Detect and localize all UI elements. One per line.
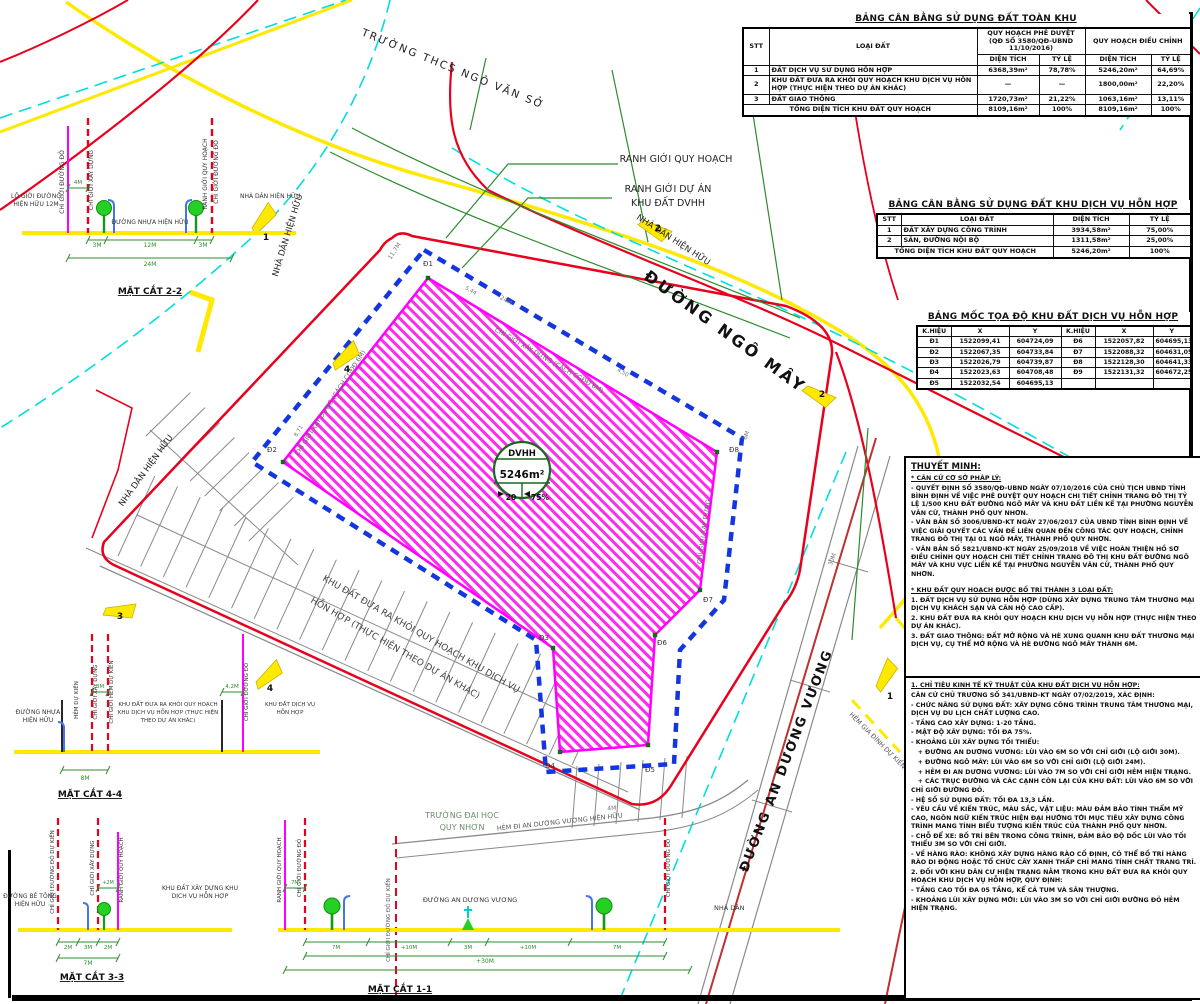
- table-cell: [1061, 378, 1095, 389]
- table-header-row: STTLOẠI ĐẤTQUY HOẠCH PHÊ DUYỆT (QĐ SỐ 35…: [743, 28, 1191, 54]
- table-cell: ĐẤT DỊCH VỤ SỬ DỤNG HỖN HỢP: [769, 65, 977, 76]
- table-cell: TỶ LỆ: [1151, 54, 1191, 65]
- table-header-row: STTLOẠI ĐẤTDIỆN TÍCHTỶ LỆ: [877, 214, 1191, 225]
- table-cell: 25,00%: [1129, 236, 1191, 247]
- section-marker-label: 1: [263, 233, 269, 243]
- table-land-balance-mixed-title: BẢNG CÂN BẰNG SỬ DỤNG ĐẤT KHU DỊCH VỤ HỖ…: [876, 200, 1190, 210]
- table-cell: 3934,58m²: [1053, 225, 1129, 236]
- parcel-line: [146, 393, 190, 436]
- table-cell: 64,69%: [1151, 65, 1191, 76]
- table-land-balance-mixed-panel: BẢNG CÂN BẰNG SỬ DỤNG ĐẤT KHU DỊCH VỤ HỖ…: [876, 200, 1190, 259]
- note-line: - KHOẢNG LÙI XÂY DỰNG MỚI: LÙI VÀO 3M SO…: [911, 897, 1197, 914]
- table-cell: 1522099,41: [951, 337, 1009, 347]
- table-land-balance-total-title: BẢNG CÂN BẰNG SỬ DỤNG ĐẤT TOÀN KHU: [742, 14, 1190, 24]
- sec1-dim: 7M: [291, 880, 299, 886]
- sec1-dim: +30M: [476, 958, 494, 965]
- table-row: 1ĐẤT DỊCH VỤ SỬ DỤNG HỖN HỢP6368,39m²78,…: [743, 65, 1191, 76]
- table-cell: 604695,13: [1009, 378, 1061, 389]
- table-cell: Đ3: [917, 357, 951, 367]
- table-cell: TỶ LỆ: [1039, 54, 1085, 65]
- table-cell: QUY HOẠCH ĐIỀU CHỈNH: [1085, 28, 1191, 54]
- note-line: * KHU ĐẤT QUY HOẠCH ĐƯỢC BỐ TRÍ THÀNH 3 …: [911, 587, 1197, 595]
- label-hem-adv: HẺM ĐI AN DƯƠNG VƯƠNG HIỆN HỮU: [496, 810, 623, 832]
- table-cell: [1153, 378, 1191, 389]
- sec2-label: ĐƯỜNG NHỰA HIỆN HỮU: [112, 218, 189, 226]
- sec4-label: THEO DỰ ÁN KHÁC): [140, 717, 196, 724]
- sec3-title: MẶT CẮT 3-3: [60, 970, 124, 983]
- tree-icon: [98, 903, 111, 931]
- median-icon: [462, 918, 474, 930]
- corner-point-marker: [551, 646, 555, 650]
- red-zigzag-left: [92, 390, 132, 538]
- corner-point-marker: [558, 750, 562, 754]
- table-cell: 604708,48: [1009, 368, 1061, 378]
- corner-point-marker: [646, 743, 650, 747]
- centerline-topleft: [0, 0, 346, 118]
- table-cell: 100%: [1039, 105, 1085, 116]
- table-cell: 604724,09: [1009, 337, 1061, 347]
- sec2-label: NHÀ DÂN HIỆN HỮU: [240, 192, 301, 200]
- section-marker-label: 2: [819, 390, 825, 400]
- circle-density: 75%: [531, 493, 549, 502]
- note-line: - TẦNG CAO XÂY DỰNG: 1-20 TẦNG.: [911, 720, 1197, 728]
- table-cell: 1063,16m²: [1085, 94, 1151, 105]
- tree-icon: [324, 898, 340, 930]
- sec3-dim: 2M: [64, 945, 72, 951]
- dim-label: 4,50: [616, 367, 630, 379]
- table-cell: [1095, 378, 1153, 389]
- table-cell: 1800,00m²: [1085, 76, 1151, 94]
- note-line: - KHOẢNG LÙI XÂY DỰNG TỐI THIỂU:: [911, 739, 1197, 747]
- section-marker-label: 4: [267, 684, 273, 694]
- table-cell: Đ6: [1061, 337, 1095, 347]
- label-university-1: TRƯỜNG ĐẠI HỌC: [424, 809, 499, 821]
- sec3-label: DỊCH VỤ HỖN HỢP: [172, 892, 229, 900]
- table-cell: 1: [877, 225, 901, 236]
- label-road-ngo-may: ĐƯỜNG NGÔ MÂY: [640, 266, 810, 397]
- note-line: [911, 581, 1197, 586]
- sec2-label: CHỈ GIỚI ĐƯỜNG ĐỎ: [212, 140, 220, 204]
- table-cell: 604733,84: [1009, 347, 1061, 357]
- table-cell: ĐẤT GIAO THÔNG: [769, 94, 977, 105]
- sec3-label: RANH GIỚI QUY HOẠCH: [118, 837, 125, 902]
- note-line: - MẬT ĐỘ XÂY DỰNG: TỐI ĐA 75%.: [911, 729, 1197, 737]
- dim-label: 24M: [498, 294, 513, 306]
- note-thuyet-minh-title: THUYẾT MINH:: [911, 462, 1197, 472]
- dim-label: 5,44: [464, 285, 478, 297]
- parcel-line: [660, 758, 665, 820]
- table-cell: ĐẤT XÂY DỰNG CÔNG TRÌNH: [901, 225, 1053, 236]
- road-yellow-spur: [190, 292, 212, 352]
- table-cell: LOẠI ĐẤT: [769, 28, 977, 65]
- table-cell: X: [1095, 326, 1153, 337]
- table-row: Đ21522067,35604733,84Đ71522088,32604631,…: [917, 347, 1191, 357]
- label-project-boundary-1: RANH GIỚI DỰ ÁN: [625, 183, 712, 195]
- table-cell: 1522057,82: [1095, 337, 1153, 347]
- sec2-label: HIỆN HỮU 12M: [13, 200, 58, 208]
- note-line: - HỆ SỐ SỬ DỤNG ĐẤT: TỐI ĐA 13,3 LẦN.: [911, 797, 1197, 805]
- parcel-line: [220, 468, 264, 511]
- table-cell: 22,20%: [1151, 76, 1191, 94]
- table-cell: 78,78%: [1039, 65, 1085, 76]
- tree-icon: [596, 898, 612, 930]
- note-line: - VĂN BẢN SỐ 3006/UBND-KT NGÀY 27/06/201…: [911, 519, 1197, 544]
- explanatory-notes-panel: THUYẾT MINH:* CĂN CỨ CƠ SỞ PHÁP LÝ:- QUY…: [904, 456, 1200, 680]
- table-row: Đ51522032,54604695,13: [917, 378, 1191, 389]
- table-cell: K.HIỆU: [1061, 326, 1095, 337]
- note-line: - VỀ HÀNG RÀO: KHÔNG XÂY DỰNG HÀNG RÀO C…: [911, 851, 1197, 868]
- sec2-title: MẶT CẮT 2-2: [118, 284, 182, 297]
- section-marker-label: 1: [887, 692, 893, 702]
- sec3-dim: 2M: [104, 945, 112, 951]
- table-cell: 604695,13: [1153, 337, 1191, 347]
- table-cell: DIỆN TÍCH: [977, 54, 1039, 65]
- table-cell: 1522131,32: [1095, 368, 1153, 378]
- note-line: + CÁC TRỤC ĐƯỜNG VÀ CÁC CẠNH CÒN LẠI CỦA…: [911, 778, 1197, 795]
- label-planning-boundary: RANH GIỚI QUY HOẠCH: [620, 153, 733, 165]
- table-cell: SÂN, ĐƯỜNG NỘI BỘ: [901, 236, 1053, 247]
- red-diag-behind-tables: [852, 92, 898, 300]
- sec1-label: RANH GIỚI QUY HOẠCH: [276, 837, 283, 902]
- circle-land-area: 5246m²: [500, 469, 545, 481]
- point-label: Đ3: [539, 634, 549, 642]
- table-cell: 1522128,30: [1095, 357, 1153, 367]
- sec2-label: RANH GIỚI QUY HOẠCH: [202, 138, 209, 209]
- sec4-label: ĐƯỜNG NHỰA: [16, 709, 61, 716]
- note-line: 3. ĐẤT GIAO THÔNG: ĐẤT MỞ RỘNG VÀ HÈ XUN…: [911, 633, 1197, 650]
- sec3-label: CHỈ GIỚI XÂY DỰNG: [88, 840, 96, 895]
- table-row: Đ31522026,79604739,87Đ81522128,30604641,…: [917, 357, 1191, 367]
- table-land-balance-total: STTLOẠI ĐẤTQUY HOẠCH PHÊ DUYỆT (QĐ SỐ 35…: [742, 27, 1192, 117]
- table-coordinates: K.HIỆUXYK.HIỆUXYĐ11522099,41604724,09Đ61…: [916, 325, 1192, 390]
- note-line: - CHỖ ĐỂ XE: BỐ TRÍ BÊN TRONG CÔNG TRÌNH…: [911, 833, 1197, 850]
- table-cell: KHU ĐẤT ĐƯA RA KHỎI QUY HOẠCH KHU DỊCH V…: [769, 76, 977, 94]
- table-cell: 3: [743, 94, 769, 105]
- table-cell: —: [1039, 76, 1085, 94]
- sec1-label: CHỈ GIỚI ĐƯỜNG ĐỎ: [295, 838, 303, 897]
- street-lamp-icon: [344, 896, 350, 930]
- label-project-boundary-2: KHU ĐẤT DVHH: [631, 197, 705, 209]
- parcel-line: [163, 497, 200, 577]
- table-cell: DIỆN TÍCH: [1085, 54, 1151, 65]
- table-cell: Y: [1009, 326, 1061, 337]
- table-cell: TỔNG DIỆN TÍCH KHU ĐẤT QUY HOẠCH: [877, 246, 1053, 257]
- note-line: - QUYẾT ĐỊNH SỐ 3580/QĐ-UBND NGÀY 07/10/…: [911, 485, 1197, 518]
- table-cell: 100%: [1129, 246, 1191, 257]
- parcel-line: [504, 654, 541, 734]
- parcel-line: [234, 483, 278, 526]
- sec4-label: HẺM DỰ KIẾN: [72, 681, 80, 719]
- section-marker-flag: [871, 658, 900, 694]
- sec4-label: CHỈ GIỚI XÂY DỰNG: [91, 664, 99, 719]
- note-line: - TẦNG CAO TỐI ĐA 05 TẦNG, KỂ CẢ TUM VÀ …: [911, 887, 1197, 895]
- sec4-title: MẶT CẮT 4-4: [58, 787, 122, 800]
- sec1-label: NHÀ DÂN: [714, 903, 745, 912]
- sec1-dim: +10M: [401, 945, 418, 951]
- street-lamp-icon: [586, 896, 592, 930]
- point-label: Đ8: [729, 446, 739, 454]
- sec2-dim: 12M: [144, 242, 157, 249]
- table-land-balance-total-panel: BẢNG CÂN BẰNG SỬ DỤNG ĐẤT TOÀN KHUSTTLOẠ…: [742, 14, 1190, 117]
- sec3-dim: 7M: [84, 960, 93, 967]
- sec3-label: CHỈ GIỚI ĐƯỜNG ĐỎ DỰ KIẾN: [48, 830, 56, 914]
- table-cell: 75,00%: [1129, 225, 1191, 236]
- table-cell: X: [951, 326, 1009, 337]
- table-cell: 1522026,79: [951, 357, 1009, 367]
- sec2-label: CHỈ GIỚI XÂY DỰNG: [87, 150, 95, 211]
- table-cell: QUY HOẠCH PHÊ DUYỆT (QĐ SỐ 3580/QĐ-UBND …: [977, 28, 1085, 54]
- note-line: 1. CHỈ TIÊU KINH TẾ KỸ THUẬT CỦA KHU ĐẤT…: [911, 682, 1197, 690]
- table-cell: Y: [1153, 326, 1191, 337]
- table-cell: Đ8: [1061, 357, 1095, 367]
- sec1-title: MẶT CẮT 1-1: [368, 982, 432, 995]
- street-lamp-icon: [58, 722, 64, 752]
- drawing-sheet: TRƯỜNG THCS NGÔ VĂN SỞNHÀ DÂN HIỆN HỮUNH…: [0, 0, 1200, 1004]
- table-cell: 8109,16m²: [977, 105, 1039, 116]
- table-cell: 1522067,35: [951, 347, 1009, 357]
- sec4-label: KHU ĐẤT ĐƯA RA KHỎI QUY HOẠCH: [118, 700, 217, 708]
- table-cell: Đ4: [917, 368, 951, 378]
- dim-label: CHỈ GIỚI ĐƯỜNG ĐỎ DỰ KIẾN: [384, 878, 392, 962]
- sec4-label: CHỈ GIỚI ĐƯỜNG ĐỎ: [242, 662, 250, 721]
- sec2-dim: 4M: [74, 180, 82, 186]
- table-cell: 100%: [1151, 105, 1191, 116]
- dim-label: 4M: [607, 805, 617, 813]
- point-label: Đ2: [267, 446, 277, 454]
- sec4-label: HỖN HỢP: [277, 708, 304, 716]
- note-line: 1. ĐẤT DỊCH VỤ SỬ DỤNG HỖN HỢP (DÙNG XÂY…: [911, 597, 1197, 614]
- table-cell: K.HIỆU: [917, 326, 951, 337]
- table-row: Đ41522023,63604708,48Đ91522131,32604672,…: [917, 368, 1191, 378]
- label-hem-gia-dinh: HẺM GIA ĐÌNH DỰ KIẾN: [847, 709, 908, 770]
- road-edge-yellow-topleft: [0, 0, 352, 132]
- table-cell: 13,11%: [1151, 94, 1191, 105]
- table-cell: 1720,73m²: [977, 94, 1039, 105]
- sec3-label: HIỆN HỮU: [15, 900, 46, 908]
- label-school-thcs: TRƯỜNG THCS NGÔ VĂN SỞ: [359, 25, 548, 112]
- note-line: - YÊU CẦU VỀ KIẾN TRÚC, MÀU SẮC, VẬT LIỆ…: [911, 806, 1197, 831]
- corner-point-marker: [715, 450, 719, 454]
- note-line: + ĐƯỜNG NGÔ MÂY: LÙI VÀO 6M SO VỚI CHỈ G…: [911, 759, 1197, 767]
- sec1-dim: +10M: [520, 945, 537, 951]
- parcel-line: [249, 498, 293, 541]
- table-row: TỔNG DIỆN TÍCH KHU ĐẤT QUY HOẠCH8109,16m…: [743, 105, 1191, 116]
- point-label: Đ5: [645, 766, 655, 774]
- table-row: 2KHU ĐẤT ĐƯA RA KHỎI QUY HOẠCH KHU DỊCH …: [743, 76, 1191, 94]
- point-label: Đ1: [423, 260, 433, 268]
- corner-point-marker: [653, 633, 657, 637]
- table-cell: Đ2: [917, 347, 951, 357]
- sec2-label: LỘ GIỚI ĐƯỜNG: [11, 193, 61, 200]
- section-marker-label: 3: [117, 612, 123, 622]
- label-existing-houses-1: NHÀ DÂN HIỆN HỮU: [269, 192, 306, 278]
- sec3-label: ĐƯỜNG BÊ TÔNG: [3, 892, 57, 900]
- table-coordinates-panel: BẢNG MỐC TỌA ĐỘ KHU ĐẤT DỊCH VỤ HỖN HỢPK…: [916, 312, 1190, 390]
- table-cell: DIỆN TÍCH: [1053, 214, 1129, 225]
- section-marker-label: 4: [344, 365, 350, 375]
- sec1-dim: 3M: [464, 945, 472, 951]
- table-row: 3ĐẤT GIAO THÔNG1720,73m²21,22%1063,16m²1…: [743, 94, 1191, 105]
- parcel-line: [209, 518, 246, 598]
- sec1-dim: 7M: [613, 945, 621, 951]
- sec2-dim: 3M: [93, 242, 102, 249]
- label-university-2: QUY NHƠN: [440, 823, 485, 832]
- parcel-line: [254, 539, 291, 619]
- table-row: TỔNG DIỆN TÍCH KHU ĐẤT QUY HOẠCH5246,20m…: [877, 246, 1191, 257]
- point-label: Đ7: [703, 596, 713, 604]
- table-cell: 5246,20m²: [1085, 65, 1151, 76]
- dim-label: 30M: [827, 552, 838, 566]
- note-line: + HẺM ĐI AN DƯƠNG VƯƠNG: LÙI VÀO 7M SO V…: [911, 769, 1197, 777]
- table-land-balance-mixed: STTLOẠI ĐẤTDIỆN TÍCHTỶ LỆ1ĐẤT XÂY DỰNG C…: [876, 213, 1192, 259]
- note-line: - CHỨC NĂNG SỬ DỤNG ĐẤT: XÂY DỰNG CÔNG T…: [911, 702, 1197, 719]
- table-cell: 2: [743, 76, 769, 94]
- street-lamp-icon: [83, 903, 88, 930]
- table-cell: TỶ LỆ: [1129, 214, 1191, 225]
- point-label: Đ4: [545, 762, 555, 770]
- tree-icon: [97, 201, 112, 234]
- table-cell: Đ5: [917, 378, 951, 389]
- sec1-dim: 7M: [332, 945, 340, 951]
- dimension-lines: [60, 688, 245, 774]
- note-line: - VĂN BẢN SỐ 5821/UBND-KT NGÀY 25/09/201…: [911, 546, 1197, 579]
- corner-point-marker: [698, 588, 702, 592]
- sec4-label: CHỈ GIỚI HẺM DỰ KIẾN: [107, 660, 115, 723]
- sec3-dim: +2M: [102, 880, 114, 886]
- sec1-label: ĐƯỜNG AN DƯƠNG VƯƠNG: [423, 895, 517, 904]
- circle-land-code: DVHH: [508, 449, 536, 459]
- table-cell: 604631,05: [1153, 347, 1191, 357]
- sec2-dim: 3M: [199, 242, 208, 249]
- table-cell: STT: [877, 214, 901, 225]
- note-line: CĂN CỨ CHỦ TRƯƠNG SỐ 341/UBND-KT NGÀY 07…: [911, 692, 1197, 700]
- table-cell: 1522023,63: [951, 368, 1009, 378]
- table-cell: 1311,58m²: [1053, 236, 1129, 247]
- table-cell: 1522032,54: [951, 378, 1009, 389]
- boundary-red-right-gap: [836, 352, 896, 618]
- sec2-label: CHỈ GIỚI ĐƯỜNG ĐỎ: [58, 150, 66, 214]
- table-cell: TỔNG DIỆN TÍCH KHU ĐẤT QUY HOẠCH: [743, 105, 977, 116]
- sec2-dim: 24M: [144, 261, 157, 268]
- table-row: 1ĐẤT XÂY DỰNG CÔNG TRÌNH3934,58m²75,00%: [877, 225, 1191, 236]
- table-cell: LOẠI ĐẤT: [901, 214, 1053, 225]
- sec4-label: HIỆN HỮU: [23, 716, 54, 724]
- table-cell: 5246,20m²: [1053, 246, 1129, 257]
- parcel-line: [186, 507, 223, 587]
- adv-road-edge: [698, 446, 858, 1004]
- note-line: 2. KHU ĐẤT ĐƯA RA KHỎI QUY HOẠCH KHU DỊC…: [911, 615, 1197, 632]
- sec3-dim: 3M: [84, 945, 92, 951]
- table-cell: 604672,25: [1153, 368, 1191, 378]
- table-cell: 1522088,32: [1095, 347, 1153, 357]
- table-coordinates-title: BẢNG MỐC TỌA ĐỘ KHU ĐẤT DỊCH VỤ HỖN HỢP: [916, 312, 1190, 322]
- sec4-dim: 8M: [81, 775, 90, 782]
- parcel-line: [638, 760, 643, 822]
- parcel-line: [205, 453, 249, 496]
- dim-label: 6M: [742, 430, 752, 441]
- circle-floors: 20: [506, 493, 516, 502]
- note-line: * CĂN CỨ CƠ SỞ PHÁP LÝ:: [911, 475, 1197, 483]
- technical-criteria-panel: 1. CHỈ TIÊU KINH TẾ KỸ THUẬT CỦA KHU ĐẤT…: [904, 676, 1200, 1000]
- section-marker-label: 2: [655, 224, 661, 234]
- sec4-dim: 4,2M: [225, 684, 239, 690]
- median-pole-icon: [464, 906, 472, 918]
- sec4-label: KHU DỊCH VỤ HỖN HỢP (THỰC HIỆN: [118, 708, 218, 716]
- table-header-row: K.HIỆUXYK.HIỆUXY: [917, 326, 1191, 337]
- table-cell: Đ7: [1061, 347, 1095, 357]
- table-cell: 8109,16m²: [1085, 105, 1151, 116]
- dim-label: 11,7M: [387, 241, 403, 260]
- note-line: 2. ĐỐI VỚI KHU DÂN CƯ HIỆN TRẠNG NẰM TRO…: [911, 869, 1197, 886]
- table-cell: 2: [877, 236, 901, 247]
- table-cell: 6368,39m²: [977, 65, 1039, 76]
- table-row: 2SÂN, ĐƯỜNG NỘI BỘ1311,58m²25,00%: [877, 236, 1191, 247]
- table-cell: —: [977, 76, 1039, 94]
- table-cell: 604739,87: [1009, 357, 1061, 367]
- sec1-label: CHỈ GIỚI ĐƯỜNG ĐỎ: [664, 838, 672, 897]
- table-cell: 21,22%: [1039, 94, 1085, 105]
- sec4-dim: 3M: [96, 684, 104, 690]
- table-cell: 604641,33: [1153, 357, 1191, 367]
- corner-point-marker: [426, 276, 430, 280]
- table-row: Đ11522099,41604724,09Đ61522057,82604695,…: [917, 337, 1191, 347]
- note-line: + ĐƯỜNG AN DƯƠNG VƯƠNG: LÙI VÀO 6M SO VỚ…: [911, 749, 1197, 757]
- sec4-label: KHU ĐẤT DỊCH VỤ: [265, 700, 315, 708]
- table-cell: STT: [743, 28, 769, 65]
- point-label: Đ6: [657, 639, 667, 647]
- table-cell: Đ1: [917, 337, 951, 347]
- corner-point-marker: [281, 460, 285, 464]
- parcel-line: [277, 549, 314, 629]
- sec3-label: KHU ĐẤT XÂY DỰNG KHU: [162, 884, 238, 892]
- table-cell: 1: [743, 65, 769, 76]
- table-cell: Đ9: [1061, 368, 1095, 378]
